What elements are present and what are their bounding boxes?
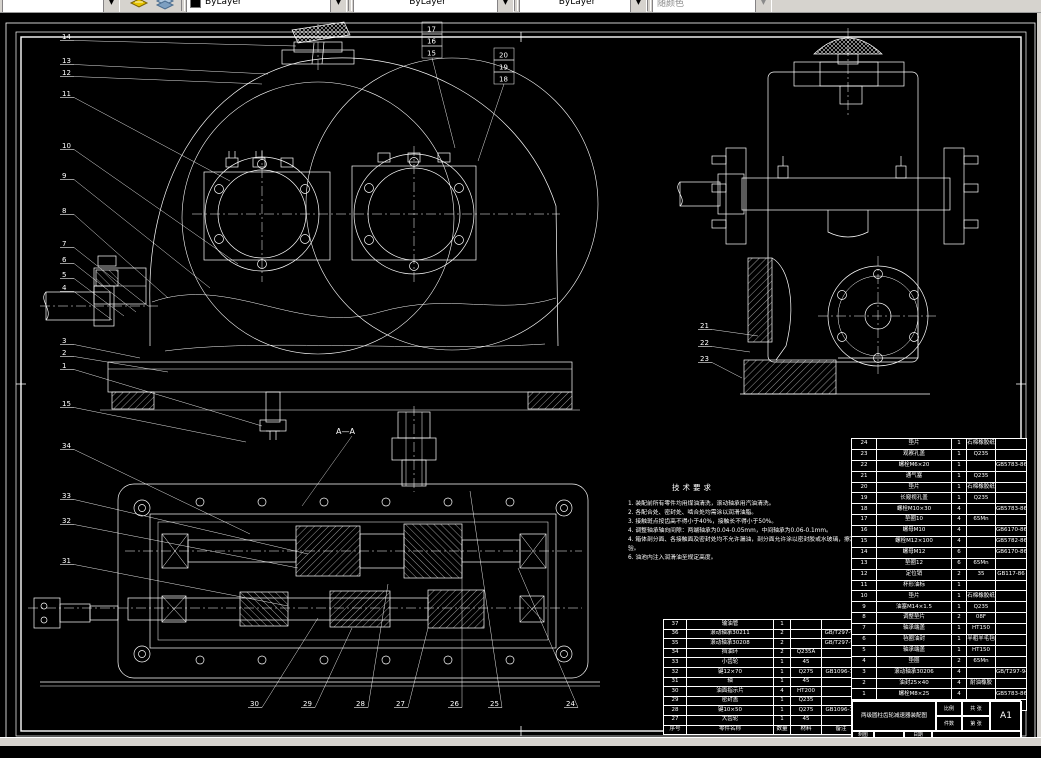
tech-requirement-line: 2. 各配合处、密封处、啮合处均需涂以润滑油脂。 xyxy=(628,509,882,518)
balloon-number: 15 xyxy=(427,50,436,58)
drawing-title: 两级圆柱齿轮减速器装配图 xyxy=(852,701,936,731)
balloon-number: 12 xyxy=(62,69,71,77)
layers-icon[interactable] xyxy=(154,0,176,11)
bom-row: 30油面指示片4HT200 xyxy=(664,687,861,697)
layer-control-combo[interactable]: ▼ xyxy=(2,0,120,13)
bom-row: 3滚动轴承302064GB/T297-94 xyxy=(852,667,1027,678)
linetype-control-combo[interactable]: ByLayer ▼ xyxy=(353,0,514,13)
lineweight-combo-arrow[interactable]: ▼ xyxy=(630,0,646,12)
balloon-number: 32 xyxy=(62,517,71,525)
bom-row: 18螺栓M10×304GB5783-86 xyxy=(852,504,1027,515)
plotstyle-control-value: 随颜色 xyxy=(653,0,755,9)
toolbar-separator xyxy=(348,0,352,11)
balloon-number: 28 xyxy=(356,700,365,708)
balloon-number: 24 xyxy=(566,700,575,708)
tech-requirement-line: 6. 油池内注入润滑油至规定高度。 xyxy=(628,554,882,563)
balloon-number: 19 xyxy=(499,64,508,72)
balloon-number: 18 xyxy=(499,76,508,84)
bom-row: 5轴承端盖1HT150 xyxy=(852,645,1027,656)
balloon-number: 26 xyxy=(450,700,459,708)
bom-row: 20垫片1石棉橡胶纸 xyxy=(852,482,1027,493)
balloon-number: 16 xyxy=(427,38,436,46)
centerlines xyxy=(40,24,560,306)
lineweight-control-value: ByLayer xyxy=(520,0,630,7)
color-control-value: ByLayer xyxy=(201,0,330,7)
bom-row: 19长窥视孔盖1Q235 xyxy=(852,493,1027,504)
boss-bolts xyxy=(226,151,450,167)
bom-row: 17垫圈10465Mn xyxy=(852,515,1027,526)
linetype-control-value: ByLayer xyxy=(354,0,497,7)
balloon-number: 5 xyxy=(62,271,66,279)
layer-combo-arrow[interactable]: ▼ xyxy=(103,0,119,12)
object-properties-toolbar: ▼ ByLayer ▼ ByLayer ▼ ByLayer ▼ 随颜色 ▼ xyxy=(0,0,1041,13)
balloon-number: 15 xyxy=(62,400,71,408)
bom-row: 24垫片1石棉橡胶纸 xyxy=(852,439,1027,450)
balloon-number: 31 xyxy=(62,557,71,565)
color-control-combo[interactable]: ByLayer ▼ xyxy=(186,0,347,13)
balloon-number: 33 xyxy=(62,492,71,500)
sheet-total-label: 共 张 xyxy=(962,701,990,716)
plotstyle-control-combo: 随颜色 ▼ xyxy=(652,0,772,13)
bom-row: 8调整垫片208F xyxy=(852,613,1027,624)
balloon-number: 23 xyxy=(700,355,709,363)
bom-row: 1螺栓M8×254GB5783-86 xyxy=(852,689,1027,700)
bom-row: 12定位销235GB117-86 xyxy=(852,569,1027,580)
balloon-number: 3 xyxy=(62,337,66,345)
lineweight-control-combo[interactable]: ByLayer ▼ xyxy=(519,0,647,13)
drawing-canvas[interactable]: A—A 141312111098765432115343332312122233… xyxy=(0,12,1041,738)
tech-requirement-line: 3. 接触斑点按齿高不得小于40%，接触长不得小于50%。 xyxy=(628,518,882,527)
plan-section-view xyxy=(28,406,600,686)
balloon-number: 20 xyxy=(499,52,508,60)
plan-bolt-holes xyxy=(134,498,572,664)
toolbar-separator xyxy=(647,0,651,11)
sheet-no-label: 第 张 xyxy=(962,716,990,731)
balloon-number: 4 xyxy=(62,284,67,292)
tech-requirement-line: 4. 调整轴承轴向间隙：两端轴承为0.04-0.05mm，中间轴承为0.06-0… xyxy=(628,527,882,536)
bom-table-right: 24垫片1石棉橡胶纸23观察孔盖1Q23522螺栓M6×201GB5783-86… xyxy=(851,438,1027,711)
color-combo-arrow[interactable]: ▼ xyxy=(330,0,346,12)
bom-row: 9油塞M14×1.51Q235 xyxy=(852,602,1027,613)
balloon-number: 2 xyxy=(62,349,66,357)
linetype-combo-arrow[interactable]: ▼ xyxy=(497,0,513,12)
bom-row: 29密封盖1Q235 xyxy=(664,696,861,706)
bom-row: 22螺栓M6×201GB5783-86 xyxy=(852,460,1027,471)
balloon-number: 14 xyxy=(62,33,71,41)
balloon-number: 27 xyxy=(396,700,405,708)
bom-row: 23观察孔盖1Q235 xyxy=(852,449,1027,460)
tech-requirement-line: 4. 箱体剖分面、各接触面及密封处均不允许漏油，剖分面允许涂以密封胶或水玻璃，擦… xyxy=(628,536,882,554)
balloon-number: 9 xyxy=(62,172,66,180)
balloon-number: 6 xyxy=(62,256,67,264)
bom-row: 14螺母M126GB6170-86 xyxy=(852,547,1027,558)
bom-row: 27大齿轮145 xyxy=(664,715,861,725)
bom-row: 37输油管1 xyxy=(664,620,861,630)
bom-row: 31轴145 xyxy=(664,677,861,687)
bom-table-left: 37输油管136滚动轴承302112GB/T297-9435滚动轴承302082… xyxy=(663,619,861,735)
balloon-number: 7 xyxy=(62,240,66,248)
bom-row: 28键10×501Q275GB1096-79 xyxy=(664,706,861,716)
bom-row: 15螺栓M12×1004GB5782-86 xyxy=(852,537,1027,548)
bom-row: 16螺母M104GB6170-86 xyxy=(852,526,1027,537)
toolbar-separator xyxy=(181,0,185,11)
balloon-number: 1 xyxy=(62,362,66,370)
bom-row: 35滚动轴承302082GB/T297-94 xyxy=(664,639,861,649)
balloon-number: 21 xyxy=(700,322,709,330)
bom-row: 7轴承端盖1HT150 xyxy=(852,624,1027,635)
front-view xyxy=(40,22,598,440)
part-balloons: 1413121110987654321153433323121222330292… xyxy=(60,33,758,708)
color-swatch xyxy=(190,0,201,8)
bom-row: 4垫圈265Mn xyxy=(852,656,1027,667)
balloon-number: 30 xyxy=(250,700,259,708)
bom-header-row: 序号零件名称数量材料备注 xyxy=(664,725,861,735)
balloon-number: 25 xyxy=(490,700,499,708)
bom-row: 2油封25×404耐油橡胶 xyxy=(852,678,1027,689)
make-object-layer-icon[interactable] xyxy=(128,0,150,11)
qty-label: 件数 xyxy=(936,716,962,731)
sheet-size: A1 xyxy=(990,701,1022,731)
balloon-number: 13 xyxy=(62,57,71,65)
balloon-number: 11 xyxy=(62,90,71,98)
balloon-number: 34 xyxy=(62,442,71,450)
section-label: A—A xyxy=(336,427,355,436)
bom-row: 6毡圈油封1半粗羊毛毡 xyxy=(852,635,1027,646)
part-balloon-stacks: 171615201918 xyxy=(422,22,514,161)
balloon-number: 10 xyxy=(62,142,71,150)
technical-requirements: 技术要求 1. 装配前所有零件均用煤油清洗，滚动轴承用汽油清洗。2. 各配合处、… xyxy=(628,482,882,563)
toolbar-separator xyxy=(514,0,518,11)
bom-row: 13垫圈12665Mn xyxy=(852,558,1027,569)
balloon-number: 29 xyxy=(303,700,312,708)
bom-row: 33小齿轮145 xyxy=(664,658,861,668)
status-bar xyxy=(0,737,1041,746)
tech-requirement-line: 1. 装配前所有零件均用煤油清洗，滚动轴承用汽油清洗。 xyxy=(628,500,882,509)
bom-row: 11杯形油标1 xyxy=(852,580,1027,591)
bom-row: 10垫片1石棉橡胶纸 xyxy=(852,591,1027,602)
plotstyle-combo-arrow: ▼ xyxy=(755,0,771,12)
bom-row: 21通气塞1Q235 xyxy=(852,471,1027,482)
balloon-number: 8 xyxy=(62,207,66,215)
scale-label: 比例 xyxy=(936,701,962,716)
right-edge-strip xyxy=(1037,12,1041,738)
balloon-number: 22 xyxy=(700,339,709,347)
bom-row: 34挡油环2Q235A xyxy=(664,648,861,658)
side-view xyxy=(678,28,978,394)
bom-row: 36滚动轴承302112GB/T297-94 xyxy=(664,629,861,639)
balloon-number: 17 xyxy=(427,26,436,34)
bom-row: 32键12×701Q275GB1096-79 xyxy=(664,667,861,677)
